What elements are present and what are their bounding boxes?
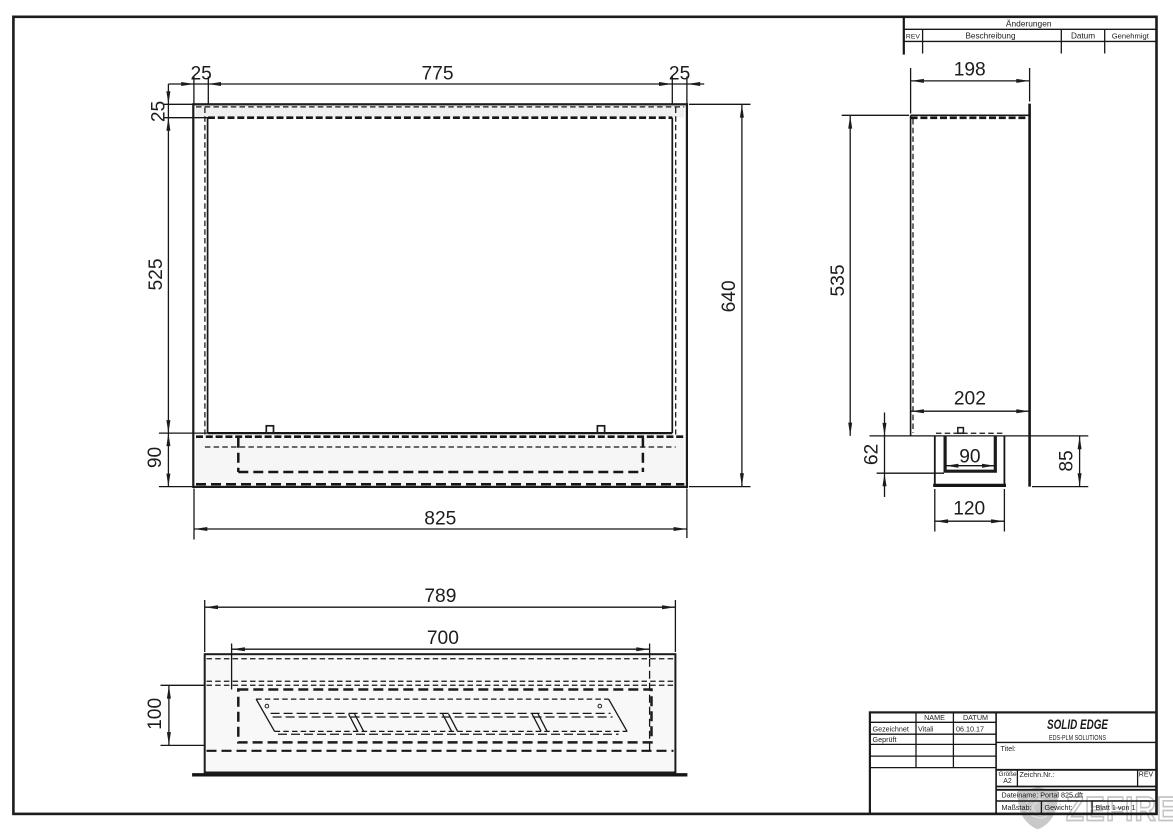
svg-text:Änderungen: Änderungen — [1006, 18, 1052, 28]
svg-text:SOLID EDGE: SOLID EDGE — [1047, 717, 1109, 732]
svg-text:85: 85 — [1056, 450, 1077, 471]
svg-text:EDS-PLM SOLUTIONS: EDS-PLM SOLUTIONS — [1049, 735, 1106, 742]
svg-text:62: 62 — [862, 444, 883, 465]
svg-text:775: 775 — [421, 63, 453, 84]
svg-text:25: 25 — [149, 101, 170, 122]
svg-text:25: 25 — [191, 63, 212, 84]
svg-text:90: 90 — [959, 447, 980, 468]
svg-text:700: 700 — [427, 628, 459, 649]
svg-text:Beschreibung: Beschreibung — [965, 32, 1016, 41]
svg-text:100: 100 — [145, 698, 166, 730]
svg-text:Blatt 1 von 1: Blatt 1 von 1 — [1096, 803, 1136, 812]
svg-text:789: 789 — [424, 586, 456, 607]
svg-text:06.10.17: 06.10.17 — [956, 724, 984, 733]
svg-text:REV: REV — [1139, 771, 1154, 778]
svg-text:Gewicht:: Gewicht: — [1045, 803, 1073, 812]
svg-text:120: 120 — [953, 499, 985, 520]
svg-text:Genehmigt: Genehmigt — [1112, 32, 1150, 41]
svg-text:535: 535 — [828, 264, 849, 296]
svg-text:Titel:: Titel: — [1001, 744, 1016, 753]
svg-text:NAME: NAME — [924, 713, 945, 722]
svg-text:Vitali: Vitali — [918, 724, 934, 733]
svg-text:Dateiname: Portal 825.dft: Dateiname: Portal 825.dft — [1002, 791, 1084, 800]
svg-text:640: 640 — [719, 280, 740, 312]
svg-text:Maßstab:: Maßstab: — [1002, 803, 1032, 812]
svg-text:A2: A2 — [1003, 778, 1012, 785]
svg-text:525: 525 — [146, 258, 167, 290]
svg-text:90: 90 — [145, 447, 166, 468]
svg-text:DATUM: DATUM — [963, 713, 988, 722]
svg-text:REV: REV — [906, 34, 920, 41]
svg-text:198: 198 — [954, 60, 986, 81]
svg-text:Gezeichnet: Gezeichnet — [873, 724, 909, 733]
svg-text:202: 202 — [954, 389, 986, 410]
svg-text:825: 825 — [424, 508, 456, 529]
svg-text:Datum: Datum — [1071, 32, 1095, 41]
svg-text:25: 25 — [669, 63, 690, 84]
svg-text:Zeichn.Nr.:: Zeichn.Nr.: — [1020, 770, 1055, 779]
svg-text:Größe: Größe — [999, 771, 1018, 778]
svg-text:Geprüft: Geprüft — [873, 735, 897, 744]
